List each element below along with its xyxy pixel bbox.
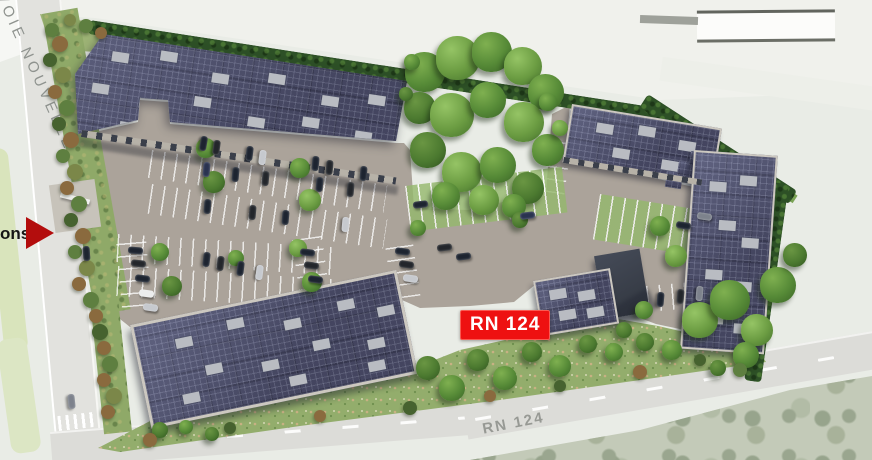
shrub — [83, 292, 99, 308]
tree — [522, 342, 542, 362]
car — [128, 246, 144, 254]
shrub — [403, 401, 417, 415]
skylight — [283, 317, 302, 330]
skylight — [549, 288, 567, 301]
skylight — [321, 95, 339, 107]
skylight — [586, 306, 604, 319]
skylight — [175, 336, 194, 349]
building-a-solar-hall — [60, 25, 412, 147]
tree — [290, 158, 310, 178]
skylight — [367, 337, 386, 350]
shrub — [79, 260, 95, 276]
car — [231, 167, 239, 183]
car — [359, 166, 367, 182]
tree — [470, 82, 506, 118]
skylight — [226, 317, 245, 330]
car — [82, 246, 90, 261]
skylight — [709, 181, 727, 192]
tree — [616, 322, 632, 338]
skylight — [741, 238, 759, 249]
tree — [635, 301, 653, 319]
skylight — [91, 83, 109, 95]
direction-arrow-icon — [26, 217, 54, 249]
tree — [162, 276, 182, 296]
skylight — [261, 359, 280, 372]
car — [203, 199, 211, 215]
shrub — [68, 245, 82, 259]
shrub — [554, 380, 566, 392]
tree — [432, 182, 460, 210]
aerial-site-plan: VOIE NOUVELLE ons RN 124 RN 124 — [0, 0, 872, 460]
tree — [532, 134, 564, 166]
skylight — [740, 175, 758, 186]
skylight — [211, 72, 229, 84]
car — [131, 259, 147, 268]
car — [346, 182, 354, 198]
skylight — [302, 116, 320, 128]
car — [248, 205, 256, 221]
shrub — [733, 363, 747, 377]
shrub — [694, 354, 706, 366]
tree — [760, 267, 796, 303]
shrub — [64, 213, 78, 227]
skylight — [661, 159, 679, 172]
tree — [399, 87, 413, 101]
car — [695, 286, 703, 302]
tree — [710, 360, 726, 376]
skylight — [268, 73, 286, 85]
skylight — [577, 289, 595, 302]
tree — [605, 343, 623, 361]
shrub — [55, 67, 71, 83]
tree — [710, 280, 750, 320]
tree — [299, 189, 321, 211]
shrub — [633, 365, 647, 379]
shrub — [63, 132, 79, 148]
shrub — [314, 410, 326, 422]
shrub — [79, 19, 93, 33]
shrub — [224, 422, 236, 434]
car — [261, 171, 269, 187]
shrub — [48, 85, 62, 99]
shrub — [71, 196, 87, 212]
skylight — [160, 50, 178, 62]
tree — [552, 120, 568, 136]
shrub — [102, 356, 118, 372]
car — [202, 162, 210, 178]
skylight — [119, 121, 137, 133]
tree — [467, 349, 489, 371]
skylight — [558, 308, 576, 321]
shrub — [106, 388, 122, 404]
skylight — [377, 304, 396, 317]
shrub — [59, 100, 75, 116]
skylight — [182, 391, 201, 404]
tree — [549, 355, 571, 377]
tree — [650, 216, 670, 236]
skylight — [705, 269, 723, 280]
car — [281, 210, 289, 226]
skylight — [312, 338, 331, 351]
skylight — [205, 362, 224, 375]
skylight — [718, 220, 736, 231]
tree — [783, 243, 807, 267]
shrub — [101, 405, 115, 419]
skylight — [368, 359, 387, 372]
shrub — [92, 324, 108, 340]
car — [676, 289, 684, 305]
shrub — [64, 14, 76, 26]
skylight — [289, 373, 308, 386]
tree — [579, 335, 597, 353]
tree — [430, 93, 474, 137]
car — [315, 177, 323, 193]
skylight — [612, 147, 630, 160]
car — [325, 160, 333, 176]
tree — [636, 333, 654, 351]
shrub — [484, 390, 496, 402]
tree — [662, 340, 682, 360]
car — [656, 292, 664, 308]
tree — [179, 420, 193, 434]
tree — [404, 54, 420, 70]
shrub — [56, 149, 70, 163]
shrub — [52, 117, 66, 131]
skylight — [111, 51, 129, 63]
rn124-route-badge: RN 124 — [460, 310, 550, 340]
shrub — [143, 433, 157, 447]
tree — [205, 427, 219, 441]
shrub — [95, 27, 107, 39]
shrub — [72, 277, 86, 291]
skylight — [193, 96, 211, 108]
tree — [410, 220, 426, 236]
car — [311, 156, 319, 172]
tree — [416, 356, 440, 380]
shrub — [67, 164, 83, 180]
shrub — [89, 309, 103, 323]
tree — [539, 93, 557, 111]
shrub — [97, 341, 111, 355]
shrub — [52, 36, 68, 52]
shrub — [75, 228, 91, 244]
shrub — [43, 53, 57, 67]
skylight — [139, 98, 157, 110]
shrub — [97, 373, 111, 387]
skylight — [596, 122, 614, 135]
skylight — [247, 116, 265, 128]
tree — [151, 243, 169, 261]
shrub — [60, 181, 74, 195]
car — [67, 394, 76, 410]
skylight — [337, 298, 356, 311]
tree — [480, 147, 516, 183]
skylight — [354, 130, 372, 142]
tree — [665, 245, 687, 267]
skylight — [638, 125, 656, 138]
tree — [439, 375, 465, 401]
tree — [469, 185, 499, 215]
car — [341, 217, 349, 233]
skylight — [368, 94, 386, 106]
tree — [410, 132, 446, 168]
shrub — [45, 23, 59, 37]
tree — [493, 366, 517, 390]
